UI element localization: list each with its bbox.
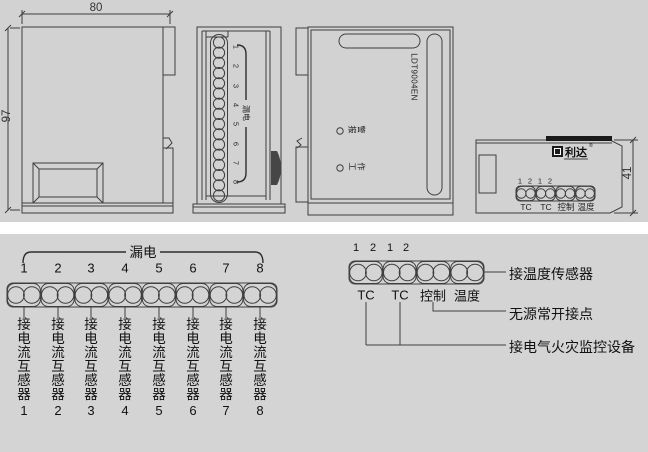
- ct-terminal-column: 接电流互感器 6: [185, 318, 201, 418]
- port-label-temperature: 温度: [454, 286, 480, 305]
- rear-terminal-number: 1: [232, 45, 241, 49]
- ct-number: 2: [50, 403, 66, 418]
- leakage-group-label: 漏电: [130, 241, 157, 261]
- ct-number: 7: [218, 403, 234, 418]
- ct-label: 接电流互感器: [117, 318, 133, 402]
- ct-number: 4: [117, 403, 133, 418]
- top-port-label-tc1: TC: [520, 202, 531, 212]
- model-number-label: LDT9004EN: [410, 53, 419, 101]
- ct-terminal-column: 接电流互感器 2: [50, 318, 66, 418]
- ct-label: 接电流互感器: [252, 318, 268, 402]
- wiring-left-lines: [7, 252, 277, 318]
- ct-number: 1: [16, 403, 32, 418]
- ct-number: 8: [252, 403, 268, 418]
- ct-label: 接电流互感器: [218, 318, 234, 402]
- brand-reg-mark: ®: [589, 143, 593, 149]
- run-led-label: 工 作: [348, 161, 365, 172]
- ct-terminal-column: 接电流互感器 7: [218, 318, 234, 418]
- annotation-fire-monitor-device: 接电气火灾监控设备: [509, 337, 635, 357]
- rear-terminal-number: 3: [232, 84, 241, 88]
- ct-number: 6: [185, 403, 201, 418]
- port-label-tc1: TC: [357, 288, 374, 303]
- top-pin-number: 2: [528, 177, 532, 186]
- top-pin-number: 1: [518, 177, 522, 186]
- ct-label: 接电流互感器: [185, 318, 201, 402]
- terminal-number: 1: [16, 261, 32, 276]
- top-port-label-tc2: TC: [540, 202, 551, 212]
- port-label-control: 控制: [420, 286, 446, 305]
- ct-number: 3: [83, 403, 99, 418]
- ct-label: 接电流互感器: [151, 318, 167, 402]
- width-dimension-label: 80: [90, 2, 103, 14]
- brand-logo-text: 利达: [565, 144, 587, 160]
- terminal-number: 3: [83, 261, 99, 276]
- rear-terminal-number: 8: [232, 180, 241, 184]
- rear-terminal-number: 2: [232, 64, 241, 68]
- pin-number: 2: [370, 242, 376, 254]
- depth-dimension-label: 41: [622, 167, 634, 180]
- alarm-led-label: 报 警: [348, 124, 365, 135]
- ct-label: 接电流互感器: [50, 318, 66, 402]
- device-drawing-page: 80 97 1 2 3 4 5 6 7 8 漏电 LDT9004EN 报 警 工…: [0, 0, 648, 452]
- rear-terminal-number: 5: [232, 122, 241, 126]
- rear-terminal-number: 6: [232, 142, 241, 146]
- ct-terminal-column: 接电流互感器 3: [83, 318, 99, 418]
- ct-label: 接电流互感器: [83, 318, 99, 402]
- pin-number: 1: [387, 242, 393, 254]
- rear-terminal-number: 4: [232, 103, 241, 107]
- ct-number: 5: [151, 403, 167, 418]
- height-dimension-label: 97: [1, 110, 13, 123]
- annotation-dry-contact: 无源常开接点: [509, 304, 593, 324]
- top-pin-number: 2: [548, 177, 552, 186]
- side-view-lines: [5, 10, 175, 213]
- front-view-lines: [296, 27, 453, 215]
- terminal-number: 7: [218, 261, 234, 276]
- annotation-temperature-sensor: 接温度传感器: [509, 264, 593, 284]
- run-led-char: 作: [356, 163, 367, 171]
- pin-number: 1: [353, 242, 359, 254]
- top-pin-number: 1: [538, 177, 542, 186]
- ct-label: 接电流互感器: [16, 318, 32, 402]
- top-port-label-temperature: 温度: [577, 201, 594, 213]
- terminal-number: 5: [151, 261, 167, 276]
- ct-terminal-column: 接电流互感器 4: [117, 318, 133, 418]
- rear-terminal-number: 7: [232, 161, 241, 165]
- port-label-tc2: TC: [391, 288, 408, 303]
- ct-terminal-column: 接电流互感器 1: [16, 318, 32, 418]
- ct-terminal-column: 接电流互感器 8: [252, 318, 268, 418]
- terminal-number: 2: [50, 261, 66, 276]
- terminal-number: 4: [117, 261, 133, 276]
- terminal-number: 8: [252, 261, 268, 276]
- top-port-label-control: 控制: [557, 201, 574, 213]
- rear-view-lines: [193, 27, 285, 213]
- terminal-number: 6: [185, 261, 201, 276]
- pin-number: 2: [403, 242, 409, 254]
- rear-leakage-group-label: 漏电: [241, 105, 252, 121]
- ct-terminal-column: 接电流互感器 5: [151, 318, 167, 418]
- alarm-led-char: 警: [356, 126, 367, 134]
